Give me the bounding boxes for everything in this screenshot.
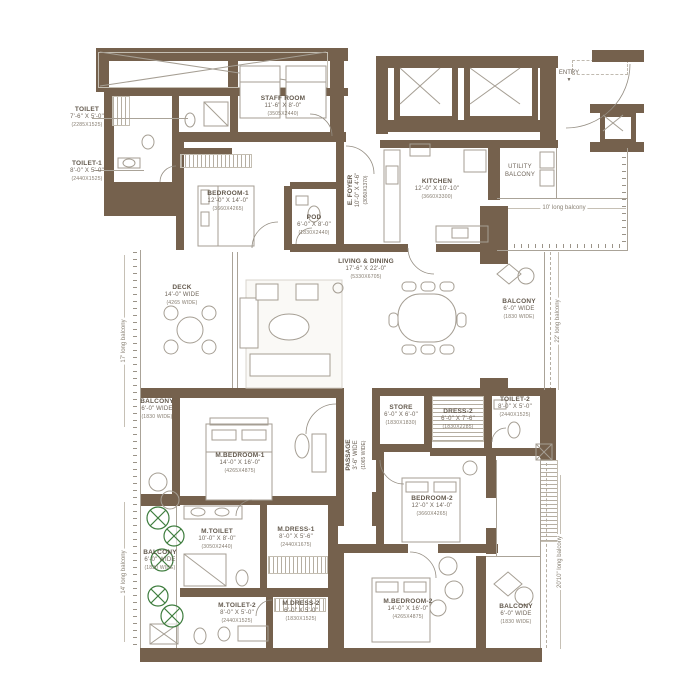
room-name: KITCHEN — [401, 178, 473, 186]
coffee-table — [269, 314, 309, 340]
balcony-chair — [497, 264, 521, 284]
room-dims: 6'-0" WIDE — [134, 406, 180, 414]
edge-label-right-top: 10' long balcony — [540, 205, 587, 211]
room-dims-mm: (2285X1525) — [64, 122, 110, 128]
room-dims-mm: (3505X2440) — [247, 111, 319, 117]
room-label-utility-balcony: UTILITY BALCONY — [498, 164, 542, 179]
wc-icon — [508, 422, 520, 438]
room-dims: 8'-0" X 5'-6" — [268, 534, 324, 542]
tub-icon — [238, 626, 268, 641]
room-name: M.BEDROOM-2 — [372, 598, 444, 606]
entry-text: ENTRY — [552, 70, 586, 77]
room-label-toilet-1: TOILET-1 8'-0" X 5'-0" (2440X1525) — [62, 160, 112, 182]
room-dims: 14'-0" WIDE — [152, 292, 212, 300]
room-label-bedroom-2: BEDROOM-2 12'-0" X 14'-0" (3660X4265) — [396, 495, 468, 517]
room-label-m-bedroom-2: M.BEDROOM-2 14'-0" X 16'-0" (4265X4875) — [372, 598, 444, 620]
room-label-e-foyer: E. FOYER 10'-0" X 4'-6" (3050X1370) — [347, 173, 369, 208]
room-dims: 12'-0" X 14'-0" — [396, 503, 468, 511]
washer-icon — [540, 152, 554, 168]
room-dims: 10'-0" X 4'-6" — [355, 173, 363, 208]
door-arc — [492, 428, 506, 442]
dining-table — [389, 282, 466, 354]
ac-ledge-icon — [536, 444, 552, 460]
room-dims: 6'-0" X 6'-0" — [378, 412, 424, 420]
sink-icon — [410, 144, 430, 156]
room-name: M.TOILET-2 — [208, 602, 266, 610]
room-label-dress-2: DRESS-2 6'-0" X 7'-6" (1830X2285) — [434, 408, 482, 430]
room-name: BALCONY — [493, 603, 539, 611]
chair-icon — [463, 461, 477, 475]
wc-icon — [142, 135, 154, 149]
tree-icon — [161, 605, 183, 627]
room-dims: 6'-0" X 8'-0" — [292, 222, 336, 230]
room-name: TOILET — [64, 106, 110, 114]
entry-label: ENTRY ▼ — [552, 70, 586, 83]
room-label-m-dress-2: M.DRESS-2 6'-0" X 5'-0" (1830X1525) — [274, 600, 328, 622]
room-name: STAFF ROOM — [247, 95, 319, 103]
room-name: M.DRESS-2 — [274, 600, 328, 608]
room-label-staff-room: STAFF ROOM 11'-6" X 8'-0" (3505X2440) — [247, 95, 319, 117]
balcony-label-left-bottom: BALCONY 6'-0" WIDE (1830 WIDE) — [137, 549, 183, 571]
room-name: DRESS-2 — [434, 408, 482, 416]
basin-icon — [123, 159, 135, 167]
room-label-m-toilet-2: M.TOILET-2 8'-0" X 5'-0" (2440X1525) — [208, 602, 266, 624]
room-label-m-toilet: M.TOILET 10'-0" X 8'-0" (3050X2440) — [188, 528, 246, 550]
balcony-label-right-bottom: BALCONY 6'-0" WIDE (1830 WIDE) — [493, 603, 539, 625]
door-arc — [346, 146, 374, 174]
room-dims: 7'-6" X 5'-0" — [64, 114, 110, 122]
door-arc — [160, 166, 176, 182]
room-dims: 11'-6" X 8'-0" — [247, 103, 319, 111]
room-dims-mm: (4265X4875) — [204, 468, 276, 474]
room-dims: 8'-0" X 5'-0" — [62, 168, 112, 176]
room-dims: 14'-0" X 16'-0" — [204, 460, 276, 468]
deck-table — [164, 306, 216, 354]
fridge-icon — [464, 150, 486, 172]
room-name: M.TOILET — [188, 528, 246, 536]
room-label-passage: PASSAGE 3'-6" WIDE (1065 WIDE) — [345, 439, 367, 470]
room-name: UTILITY BALCONY — [498, 164, 542, 179]
wc-icon — [194, 628, 206, 644]
room-label-bedroom-1: BEDROOM-1 12'-0" X 14'-0" (3660X4265) — [192, 190, 264, 212]
room-dims: 17'-6" X 22'-0" — [320, 266, 412, 274]
room-dims: 8'-0" X 5'-0" — [490, 404, 540, 412]
chair-icon — [439, 557, 457, 575]
door-arc — [306, 404, 336, 434]
kitchen-counter — [384, 150, 400, 242]
wc-icon — [236, 570, 248, 586]
room-dims-mm: (1830X2440) — [292, 230, 336, 236]
room-label-deck: DECK 14'-0" WIDE (4265 WIDE) — [152, 284, 212, 306]
shaft-x-icon — [603, 115, 623, 131]
room-dims-mm: (3660X4265) — [396, 511, 468, 517]
room-name: STORE — [378, 404, 424, 412]
dresser-icon — [312, 434, 326, 472]
balcony-label-left-mid: BALCONY 6'-0" WIDE (1830 WIDE) — [134, 398, 180, 420]
tree-icon — [147, 507, 169, 529]
room-dims-mm: (4265 WIDE) — [152, 300, 212, 306]
room-name: BALCONY — [137, 549, 183, 557]
hob-icon — [452, 228, 468, 238]
armchair — [256, 284, 278, 300]
vanity-icon — [184, 506, 242, 519]
room-dims-mm: (1065 WIDE) — [361, 439, 367, 470]
room-label-toilet: TOILET 7'-6" X 5'-0" (2285X1525) — [64, 106, 110, 128]
room-label-store: STORE 6'-0" X 6'-0" (1830X1830) — [378, 404, 424, 426]
room-dims-mm: (2440X1525) — [62, 176, 112, 182]
room-dims: 10'-0" X 8'-0" — [188, 536, 246, 544]
wc-icon — [185, 113, 195, 127]
room-dims-mm: (1830X1525) — [274, 616, 328, 622]
room-dims-mm: (1830 WIDE) — [137, 565, 183, 571]
lounge-chair — [161, 491, 179, 509]
room-name: DECK — [152, 284, 212, 292]
room-name: POD — [292, 214, 336, 222]
lounge-chair — [149, 473, 167, 491]
mirror-icon — [295, 434, 309, 458]
door-arc — [252, 222, 278, 248]
room-name: BALCONY — [496, 298, 542, 306]
washer-icon — [540, 170, 554, 186]
room-label-m-bedroom-1: M.BEDROOM-1 14'-0" X 16'-0" (4265X4875) — [204, 452, 276, 474]
lift-x-icon — [470, 68, 520, 104]
balcony-label-right-mid: BALCONY 6'-0" WIDE (1830 WIDE) — [496, 298, 542, 320]
room-dims: 6'-0" WIDE — [496, 306, 542, 314]
room-label-pod: POD 6'-0" X 8'-0" (1830X2440) — [292, 214, 336, 236]
room-dims-mm: (2440X1525) — [208, 618, 266, 624]
edge-label-right-mid: 22' long balcony — [555, 297, 561, 344]
room-dims-mm: (4265X4875) — [372, 614, 444, 620]
room-dims: 6'-0" X 5'-0" — [274, 608, 328, 616]
sofa — [240, 298, 258, 348]
sofa — [250, 354, 330, 376]
room-label-living-dining: LIVING & DINING 17'-6" X 22'-0" (5330X67… — [320, 258, 412, 280]
room-name: BEDROOM-2 — [396, 495, 468, 503]
room-dims-mm: (3050X2440) — [188, 544, 246, 550]
room-dims-mm: (3050X1370) — [363, 173, 369, 208]
room-label-kitchen: KITCHEN 12'-0" X 10'-10" (3660X3300) — [401, 178, 473, 200]
edge-label-right-bottom: 20'10" long balcony — [557, 534, 563, 590]
balcony-table — [518, 268, 534, 284]
tree-icon — [164, 526, 184, 546]
room-dims: 6'-0" X 7'-6" — [434, 416, 482, 424]
armchair — [296, 284, 318, 300]
basin-icon — [296, 196, 308, 205]
edge-label-left-bottom: 14' long balcony — [121, 548, 127, 595]
room-dims-mm: (1830 WIDE) — [496, 314, 542, 320]
furniture-layer — [0, 0, 700, 700]
room-label-toilet-2: TOILET-2 8'-0" X 5'-0" (2440X1525) — [490, 396, 540, 418]
tree-icon — [148, 586, 168, 606]
room-dims-mm: (2440X1525) — [490, 412, 540, 418]
room-dims: 14'-0" X 16'-0" — [372, 606, 444, 614]
room-name: E. FOYER — [347, 173, 355, 208]
room-name: PASSAGE — [345, 439, 353, 470]
room-dims-mm: (1830X1830) — [378, 420, 424, 426]
room-name: BEDROOM-1 — [192, 190, 264, 198]
basin-icon — [215, 508, 229, 516]
room-dims: 3'-6" WIDE — [353, 439, 361, 470]
room-dims-mm: (3660X4265) — [192, 206, 264, 212]
door-arc — [236, 500, 252, 516]
room-label-m-dress-1: M.DRESS-1 8'-0" X 5'-6" (2440X1675) — [268, 526, 324, 548]
room-dims-mm: (1830 WIDE) — [134, 414, 180, 420]
basin-icon — [218, 627, 230, 641]
room-name: M.DRESS-1 — [268, 526, 324, 534]
room-name: BALCONY — [134, 398, 180, 406]
room-dims: 6'-0" WIDE — [493, 611, 539, 619]
lift-x-icon — [400, 68, 440, 104]
room-dims: 12'-0" X 14'-0" — [192, 198, 264, 206]
room-dims-mm: (3660X3300) — [401, 194, 473, 200]
room-dims-mm: (5330X6705) — [320, 274, 412, 280]
room-dims: 6'-0" WIDE — [137, 557, 183, 565]
room-dims-mm: (1830X2285) — [434, 424, 482, 430]
room-name: TOILET-1 — [62, 160, 112, 168]
entry-arrow-icon: ▼ — [552, 77, 586, 83]
room-dims-mm: (1830 WIDE) — [493, 619, 539, 625]
room-name: M.BEDROOM-1 — [204, 452, 276, 460]
room-name: LIVING & DINING — [320, 258, 412, 266]
room-dims-mm: (2440X1675) — [268, 542, 324, 548]
balcony-chair — [494, 572, 522, 596]
basin-icon — [191, 508, 205, 516]
door-arc — [410, 552, 436, 578]
room-name: TOILET-2 — [490, 396, 540, 404]
floor-plan: STAFF ROOM 11'-6" X 8'-0" (3505X2440) TO… — [0, 0, 700, 700]
edge-label-left-top: 17' long balcony — [121, 317, 127, 364]
room-dims: 8'-0" X 5'-0" — [208, 610, 266, 618]
chair-icon — [445, 581, 463, 599]
room-dims: 12'-0" X 10'-10" — [401, 186, 473, 194]
sink-icon — [386, 166, 398, 184]
door-arc — [380, 460, 404, 484]
